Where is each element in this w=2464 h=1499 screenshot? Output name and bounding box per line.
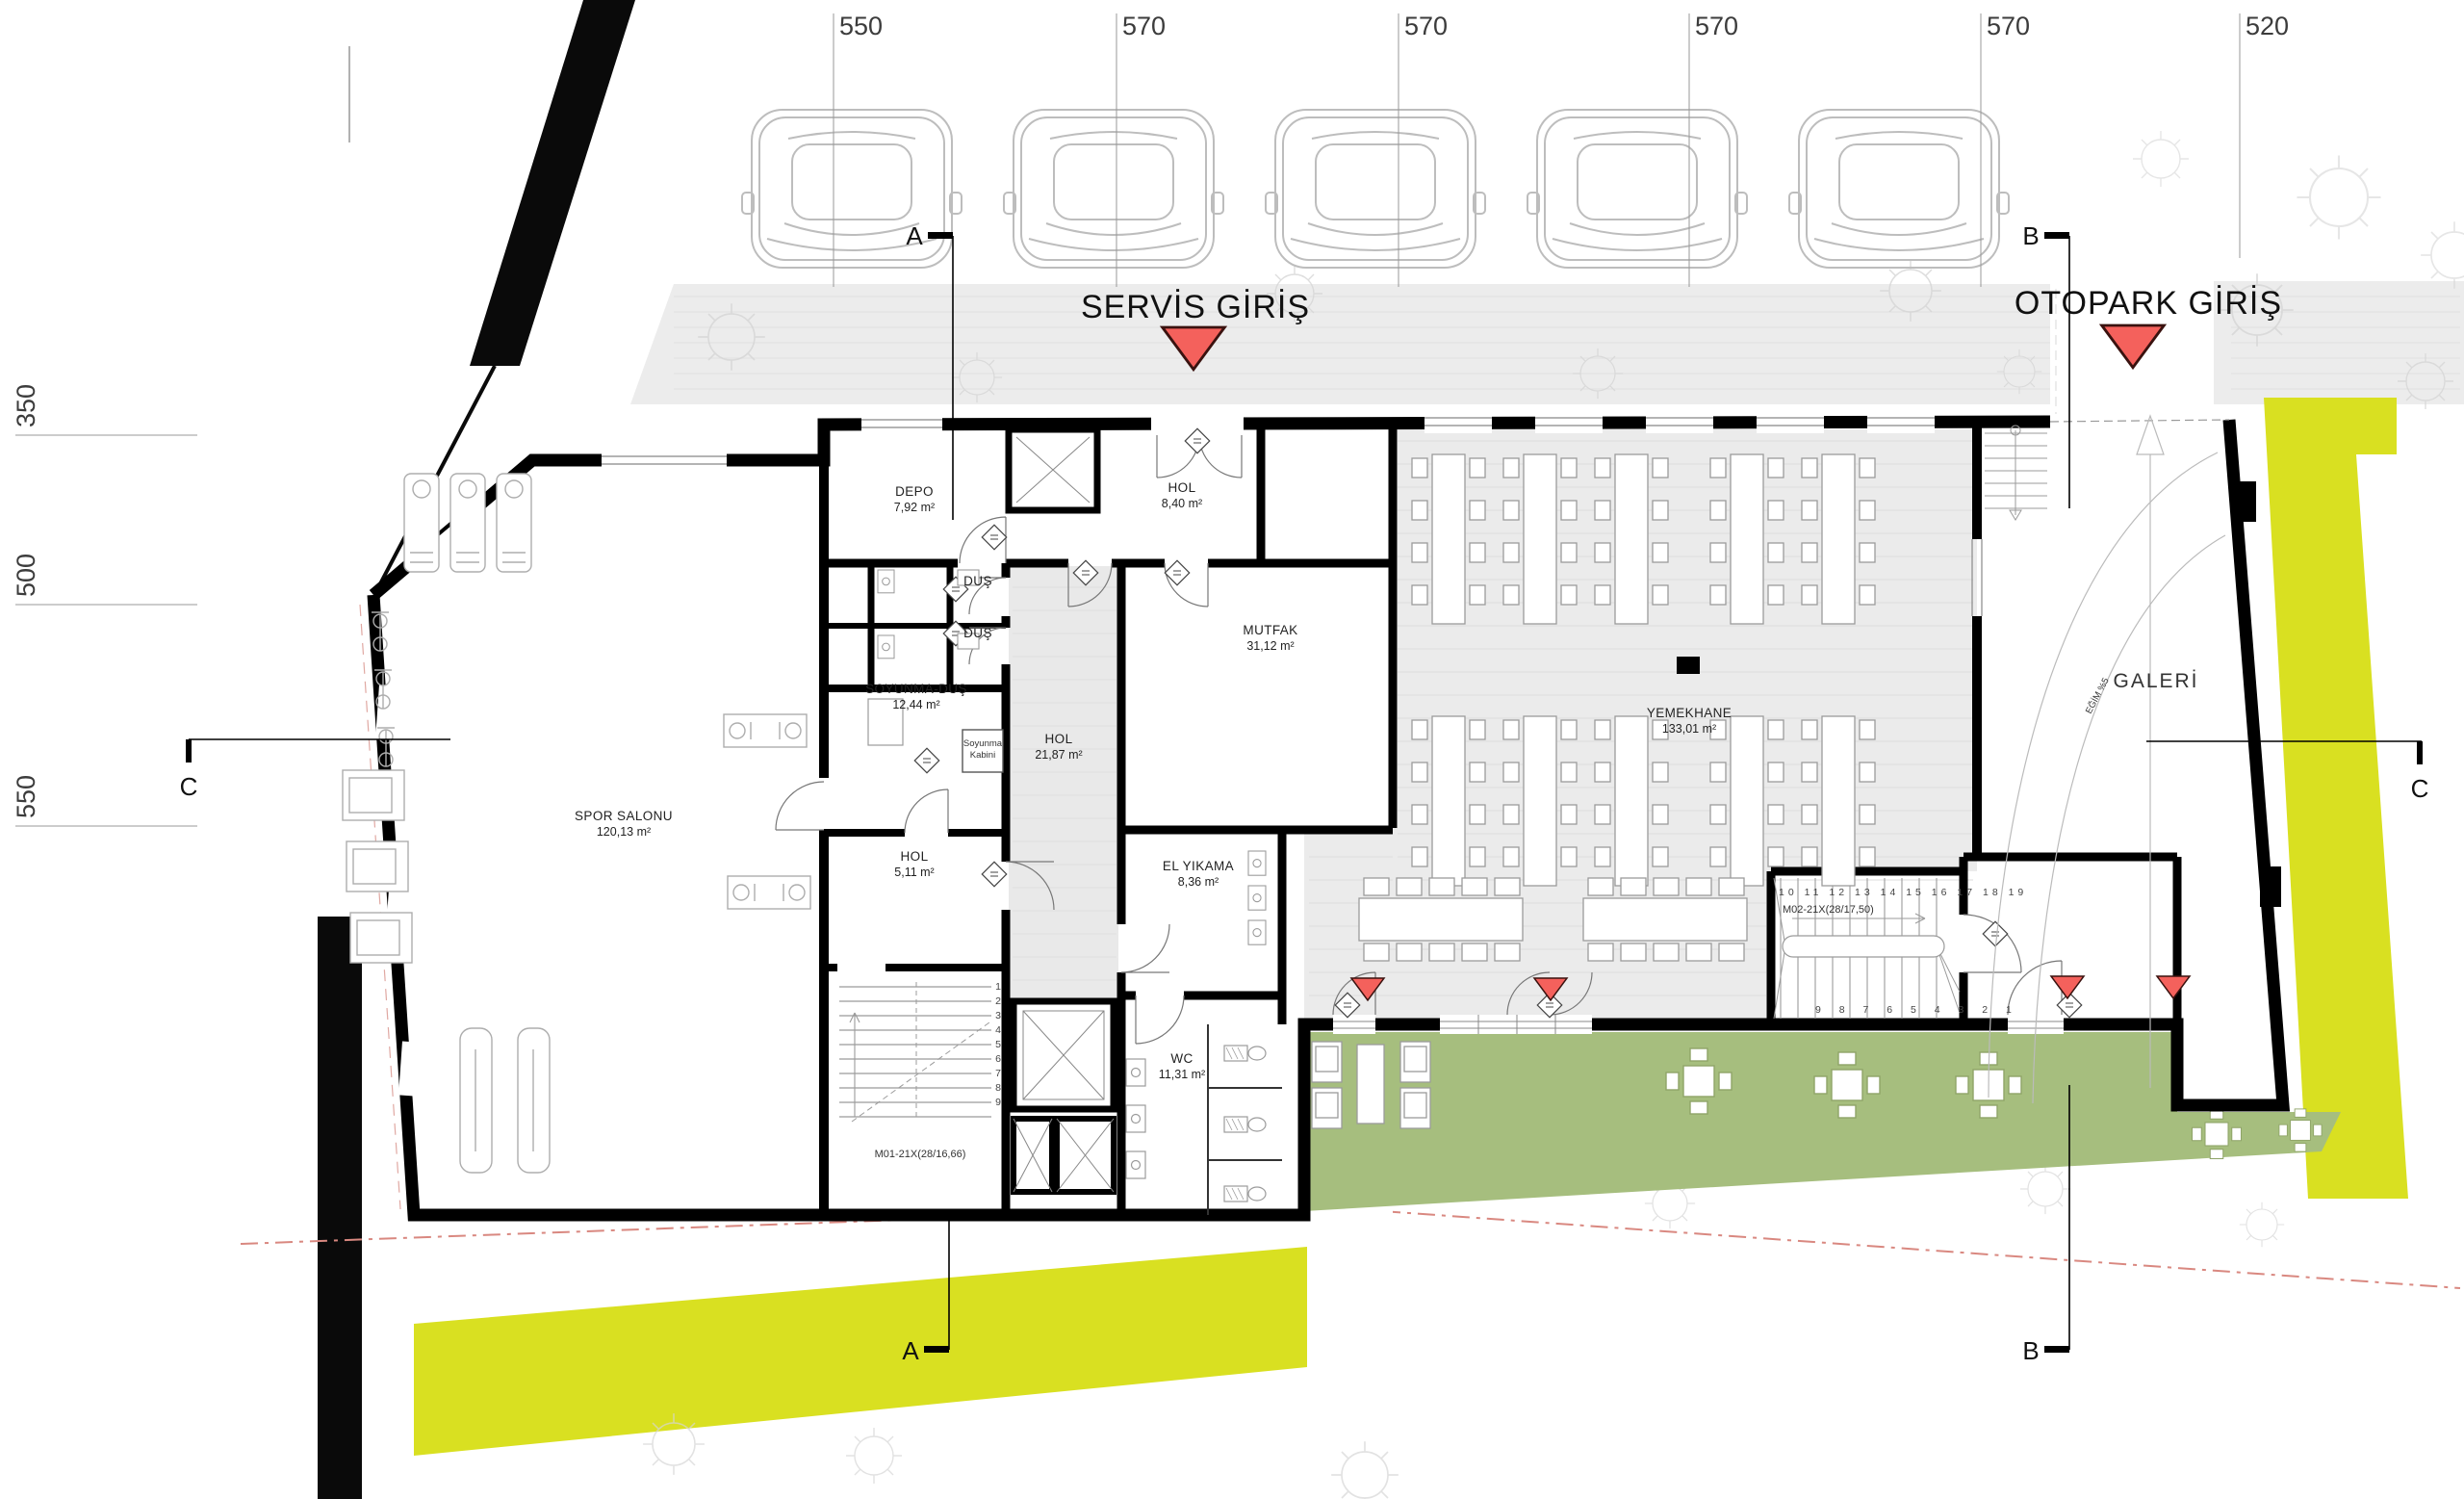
svg-text:B: B: [2022, 221, 2039, 250]
step-number: 6: [995, 1053, 1001, 1065]
sun-lounger: [1400, 1042, 1430, 1082]
room-name: SPOR SALONU: [575, 809, 673, 823]
window: [1424, 410, 1492, 433]
room-name: GALERİ: [2113, 670, 2198, 692]
floor-plan-drawing: 550 570 570 570 570 520 350 500 550: [0, 0, 2464, 1499]
dim-label: 570: [1404, 12, 1448, 40]
sink: [1248, 851, 1266, 875]
window: [861, 412, 942, 435]
dim-label: 570: [1122, 12, 1166, 40]
dining-table: [1359, 878, 1523, 961]
svg-text:A: A: [902, 1336, 919, 1365]
room-name: Soyunma: [963, 738, 1003, 749]
elevator-shaft: [1009, 429, 1097, 510]
room-area: 11,31 m²: [1159, 1068, 1205, 1081]
dim-label: 550: [12, 775, 40, 818]
room-name: DUŞ: [963, 626, 992, 640]
room-name: HOL: [901, 849, 929, 864]
room-name: DEPO: [895, 484, 934, 499]
window: [602, 449, 727, 472]
stair-landing: [1783, 936, 1944, 957]
room-name: Kabini: [970, 750, 995, 761]
weight-machine: [724, 714, 807, 747]
room-area: 120,13 m²: [597, 825, 651, 839]
window: [1535, 410, 1603, 433]
dim-label: 350: [12, 384, 40, 427]
parking-entrance-label: OTOPARK GİRİŞ: [2015, 285, 2282, 322]
room-area: 31,12 m²: [1246, 639, 1294, 653]
sink: [1248, 886, 1266, 910]
weight-machine: [728, 876, 810, 909]
room-area: 8,40 m²: [1162, 497, 1202, 510]
wall-notch: [2235, 481, 2256, 522]
step-number: 7: [995, 1068, 1001, 1079]
room-area: 5,11 m²: [894, 866, 934, 879]
room-name: HOL: [1168, 480, 1196, 495]
dim-label: 550: [839, 12, 883, 40]
sun-lounger: [1312, 1042, 1342, 1082]
bench-press: [343, 770, 404, 820]
elevator-shaft: [1057, 1119, 1114, 1192]
room-area: 8,36 m²: [1178, 875, 1219, 889]
room-name: YEMEKHANE: [1647, 706, 1732, 720]
toilet: [1224, 1046, 1266, 1061]
sink: [1126, 1059, 1145, 1086]
toilet: [1224, 1117, 1266, 1132]
stair-label: M02-21X(28/17,50): [1783, 904, 1874, 916]
column: [1677, 657, 1700, 674]
svg-text:C: C: [180, 772, 198, 801]
service-entrance-label: SERVİS GİRİŞ: [1081, 289, 1310, 325]
window: [1757, 410, 1824, 433]
dim-label: 500: [12, 554, 40, 597]
step-numbers-row: 9 8 7 6 5 4 3 2 1: [1815, 1004, 2019, 1016]
room-name: SOYUNMA-DUŞ: [865, 682, 967, 696]
dim-label: 520: [2246, 12, 2289, 40]
sink: [1126, 1105, 1145, 1132]
room-area: 7,92 m²: [894, 501, 935, 514]
elevator-shaft: [1014, 1001, 1114, 1109]
sink: [878, 635, 894, 659]
road-band: [630, 284, 2050, 404]
workout-bench: [460, 1028, 492, 1173]
floor-plan-page: 550 570 570 570 570 520 350 500 550: [0, 0, 2464, 1499]
workout-bench: [518, 1028, 550, 1173]
window: [1867, 410, 1935, 433]
step-number: 2: [995, 995, 1001, 1007]
step-number: 8: [995, 1082, 1001, 1094]
stair-label: M01-21X(28/16,66): [875, 1149, 966, 1160]
room-name: HOL: [1045, 732, 1073, 746]
room-area: 12,44 m²: [892, 698, 939, 711]
sink: [878, 570, 894, 593]
step-number: 9: [995, 1097, 1001, 1108]
step-number: 1: [995, 981, 1001, 993]
sink: [1126, 1151, 1145, 1178]
elevator-shaft: [1014, 1119, 1052, 1192]
wall-notch: [2260, 866, 2281, 907]
sink: [1248, 920, 1266, 944]
toilet: [1224, 1186, 1266, 1202]
neighbor-wall-bottom: [318, 917, 362, 1499]
treadmill: [404, 474, 439, 572]
sun-lounger: [1400, 1088, 1430, 1128]
dining-table: [1583, 878, 1747, 961]
svg-text:B: B: [2022, 1336, 2039, 1365]
treadmill: [497, 474, 531, 572]
sun-lounger: [1312, 1088, 1342, 1128]
svg-text:C: C: [2411, 774, 2429, 803]
terrace-table-long: [1357, 1045, 1384, 1124]
room-name: DUŞ: [963, 574, 992, 588]
room-name: EL YIKAMA: [1163, 859, 1234, 873]
room-area: 21,87 m²: [1035, 748, 1082, 762]
step-number: 4: [995, 1024, 1001, 1036]
window: [1646, 410, 1713, 433]
step-numbers-row: 10 11 12 13 14 15 16 17 18 19: [1779, 887, 2027, 898]
room-name: MUTFAK: [1243, 623, 1297, 637]
step-number: 5: [995, 1039, 1001, 1050]
bench-press: [350, 913, 412, 963]
room-area: 133,01 m²: [1662, 722, 1716, 736]
room-name: WC: [1170, 1051, 1193, 1066]
dim-label: 570: [1987, 12, 2030, 40]
step-number: 3: [995, 1010, 1001, 1021]
bench-press: [346, 841, 408, 892]
svg-text:A: A: [906, 221, 923, 250]
dim-label: 570: [1695, 12, 1738, 40]
treadmill: [450, 474, 485, 572]
